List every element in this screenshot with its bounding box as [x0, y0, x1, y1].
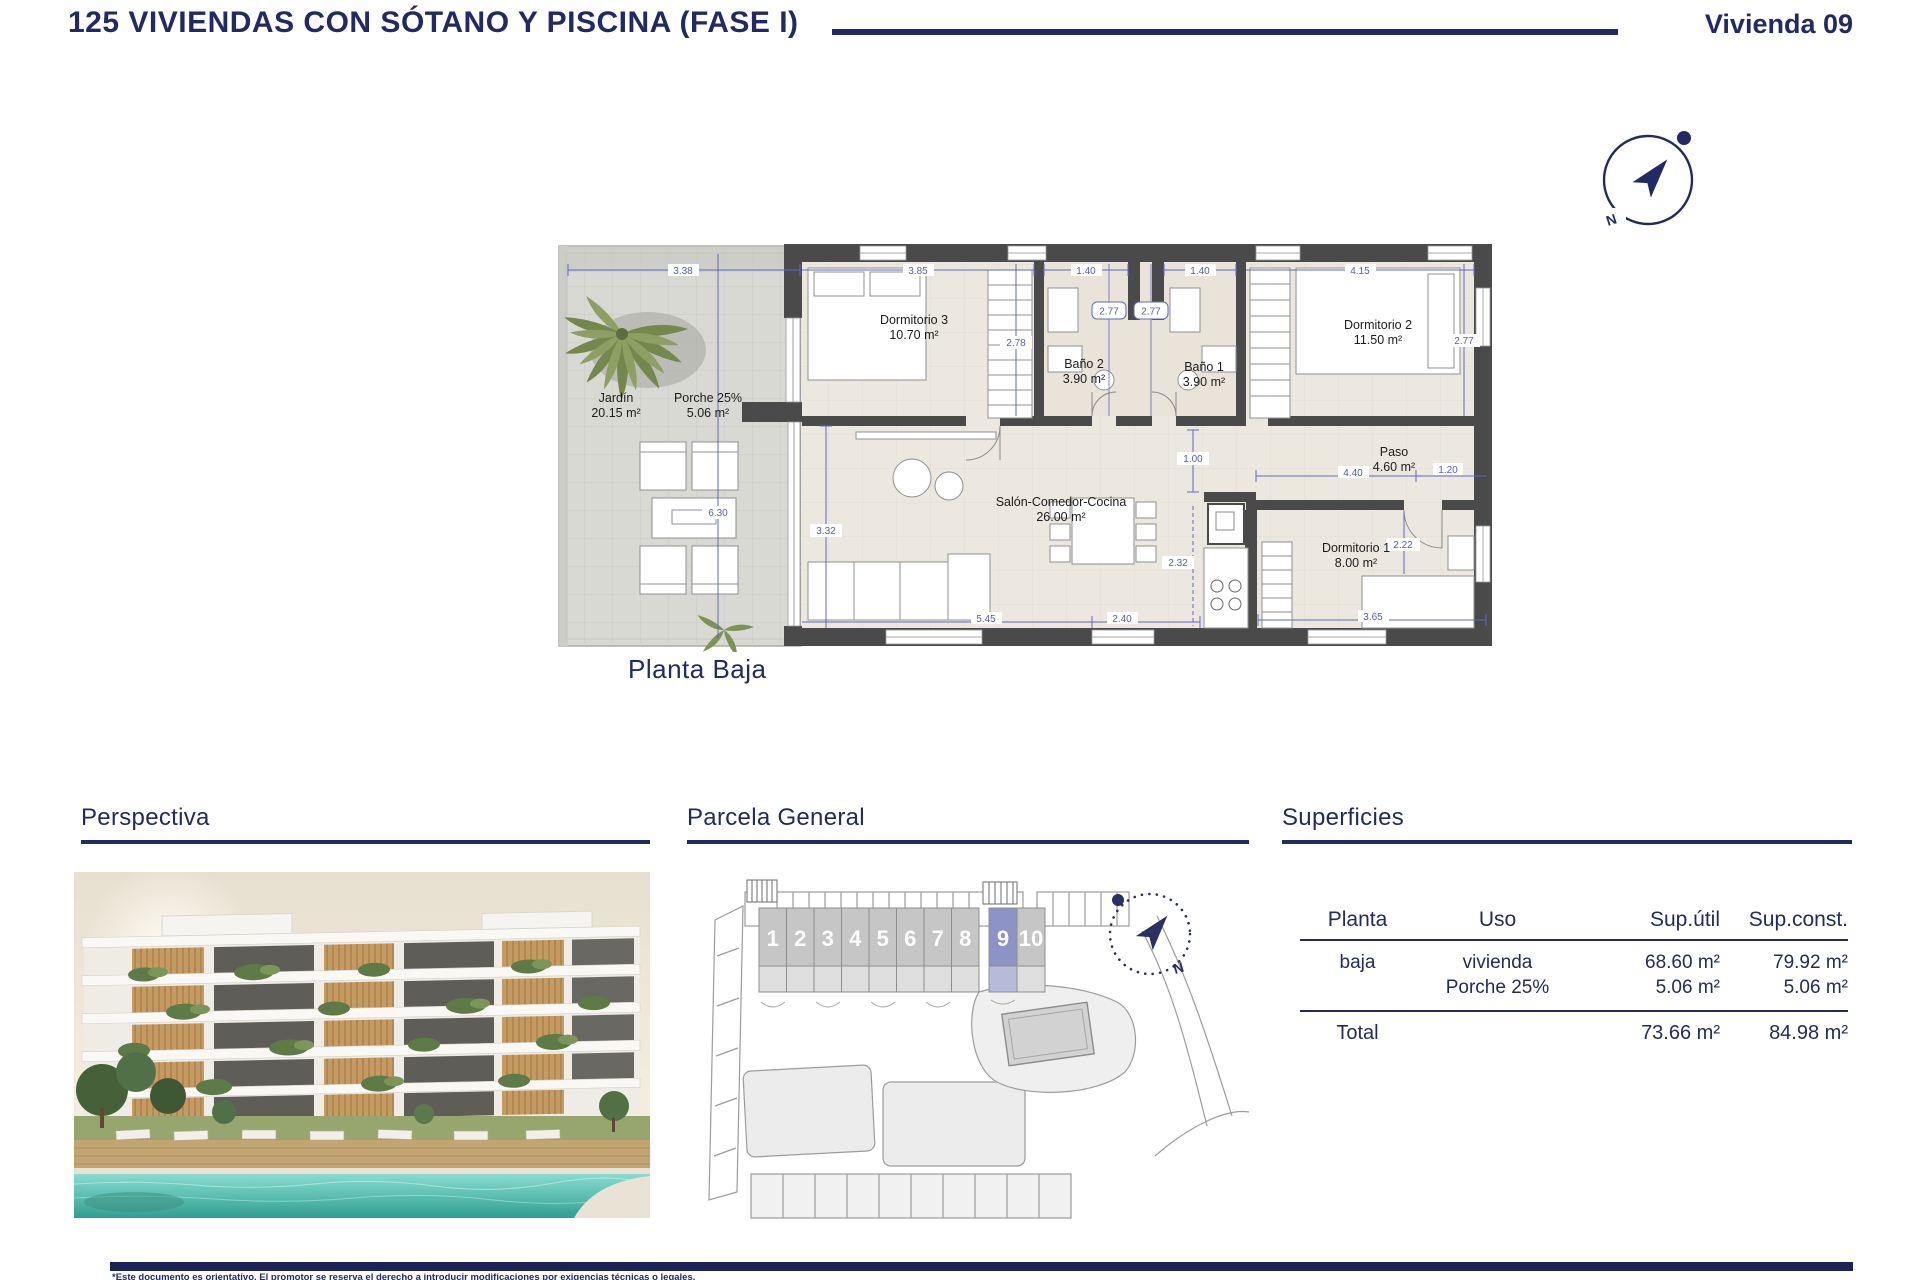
dim-salon-width: 5.45	[976, 614, 996, 625]
dim-dorm1-depth: 2.22	[1393, 540, 1413, 551]
perspectiva-title: Perspectiva	[81, 804, 210, 832]
dim-dorm2-depth: 2.77	[1454, 336, 1474, 347]
site-plan: 1 2 3 4 5 6 7 8 9 10 N	[687, 856, 1252, 1256]
superficies-rule	[1282, 840, 1852, 844]
room-paso-name: Paso	[1380, 445, 1409, 459]
parcela-north-label: N	[1171, 959, 1185, 977]
pool-deck	[74, 1140, 650, 1170]
room-dorm1-name: Dormitorio 1	[1322, 541, 1390, 555]
dim-hall-width: 1.00	[1183, 454, 1203, 465]
cell-sup-util: 68.60 m²	[1580, 950, 1720, 975]
table-row: baja vivienda 68.60 m² 79.92 m²	[1300, 950, 1848, 975]
perspective-render	[74, 872, 650, 1218]
total-sup-util: 73.66 m²	[1580, 1022, 1720, 1045]
unit-number-8: 8	[959, 926, 971, 951]
room-porche-area: 5.06 m²	[687, 406, 729, 420]
footer-bar	[110, 1262, 1853, 1271]
parcela-rule	[687, 840, 1249, 844]
parcela-compass-icon: N	[1110, 894, 1190, 977]
dim-dorm3-width: 3.85	[908, 266, 928, 277]
unit-number-10: 10	[1019, 926, 1043, 951]
unit-number-9: 9	[997, 926, 1009, 951]
lawn	[74, 1116, 650, 1144]
floor-plan: 3.38 3.85 1.40 1.40 4.15 2.78 2.77 2.77	[556, 230, 1502, 652]
dim-dorm1-width: 3.65	[1363, 612, 1383, 623]
room-dorm2-area: 11.50 m²	[1354, 333, 1402, 347]
room-dorm3-area: 10.70 m²	[889, 328, 938, 342]
unit-row	[759, 908, 1045, 1007]
dim-bano2-width: 1.40	[1076, 266, 1096, 277]
dim-bano1-width: 1.40	[1190, 266, 1210, 277]
footer-disclaimer: *Este documento es orientativo. El promo…	[112, 1272, 695, 1280]
room-bano2-area: 3.90 m²	[1063, 372, 1105, 386]
total-label: Total	[1300, 1022, 1415, 1045]
superficies-title: Superficies	[1282, 804, 1404, 832]
compass-dot	[1677, 131, 1691, 145]
bath-floor	[1044, 262, 1244, 416]
room-bano1-name: Baño 1	[1184, 360, 1224, 374]
cell-uso: Porche 25%	[1415, 975, 1580, 1000]
cell-sup-util: 5.06 m²	[1580, 975, 1720, 1000]
pool-edge	[74, 1168, 650, 1174]
col-header-sup-util: Sup.útil	[1580, 908, 1720, 932]
dim-bano1-depth: 2.77	[1141, 307, 1161, 318]
room-dorm2-name: Dormitorio 2	[1344, 318, 1412, 332]
dim-bano2-depth: 2.77	[1099, 307, 1119, 318]
cell-uso: vivienda	[1415, 950, 1580, 975]
unit-number-2: 2	[794, 926, 806, 951]
superficies-table-header: Planta Uso Sup.útil Sup.const.	[1300, 908, 1848, 941]
perspectiva-rule	[81, 840, 650, 844]
superficies-table: Planta Uso Sup.útil Sup.const. baja vivi…	[1300, 908, 1848, 1045]
table-row: Porche 25% 5.06 m² 5.06 m²	[1300, 975, 1848, 1000]
plan-level-label: Planta Baja	[628, 654, 766, 685]
page-title: 125 VIVIENDAS CON SÓTANO Y PISCINA (FASE…	[68, 6, 799, 40]
unit-9-terrace	[989, 966, 1017, 992]
cell-sup-const: 79.92 m²	[1720, 950, 1848, 975]
unit-number-5: 5	[877, 926, 889, 951]
col-header-sup-const: Sup.const.	[1720, 908, 1848, 932]
dim-garden-width: 3.38	[673, 266, 693, 277]
dim-salon-left: 3.32	[816, 526, 836, 537]
dim-paso-depth: 1.20	[1438, 465, 1458, 476]
header-compass-icon: N	[1592, 116, 1708, 242]
room-salon-name: Salón-Comedor-Cocina	[996, 495, 1127, 509]
superficies-total-row: Total 73.66 m² 84.98 m²	[1300, 1012, 1848, 1045]
dim-garden-depth: 6.30	[708, 508, 728, 519]
dim-paso-width: 4.40	[1343, 468, 1363, 479]
room-bano2-name: Baño 2	[1064, 357, 1104, 371]
page: 125 VIVIENDAS CON SÓTANO Y PISCINA (FASE…	[0, 0, 1920, 1280]
cell-planta	[1300, 975, 1415, 1000]
room-salon-area: 26.00 m²	[1036, 510, 1085, 524]
cell-sup-const: 5.06 m²	[1720, 975, 1848, 1000]
room-porche-name: Porche 25%	[674, 391, 742, 405]
dim-kitchen-width: 2.40	[1112, 614, 1132, 625]
room-dorm1-area: 8.00 m²	[1335, 556, 1377, 570]
unit-number-3: 3	[822, 926, 834, 951]
room-jardin-area: 20.15 m²	[591, 406, 640, 420]
compass-arrow	[1632, 152, 1676, 198]
room-dorm3-name: Dormitorio 3	[880, 313, 948, 327]
total-sup-const: 84.98 m²	[1720, 1022, 1848, 1045]
unit-number-4: 4	[849, 926, 862, 951]
superficies-table-body: baja vivienda 68.60 m² 79.92 m² Porche 2…	[1300, 941, 1848, 1012]
unit-number-1: 1	[767, 926, 779, 951]
unit-number-7: 7	[932, 926, 944, 951]
unit-number-6: 6	[904, 926, 916, 951]
room-jardin-name: Jardín	[599, 391, 634, 405]
room-paso-area: 4.60 m²	[1373, 460, 1415, 474]
dim-dorm3-depth: 2.78	[1006, 338, 1026, 349]
parcela-title: Parcela General	[687, 804, 865, 832]
cell-planta: baja	[1300, 950, 1415, 975]
dim-dorm2-width: 4.15	[1350, 266, 1370, 277]
header-rule	[832, 29, 1618, 35]
room-bano1-area: 3.90 m²	[1183, 375, 1225, 389]
col-header-uso: Uso	[1415, 908, 1580, 932]
communal-pool	[1002, 1002, 1094, 1065]
pool-water	[74, 1174, 650, 1218]
unit-label: Vivienda 09	[1705, 9, 1853, 40]
col-header-planta: Planta	[1300, 908, 1415, 932]
dim-kitchen-depth: 2.32	[1168, 558, 1188, 569]
